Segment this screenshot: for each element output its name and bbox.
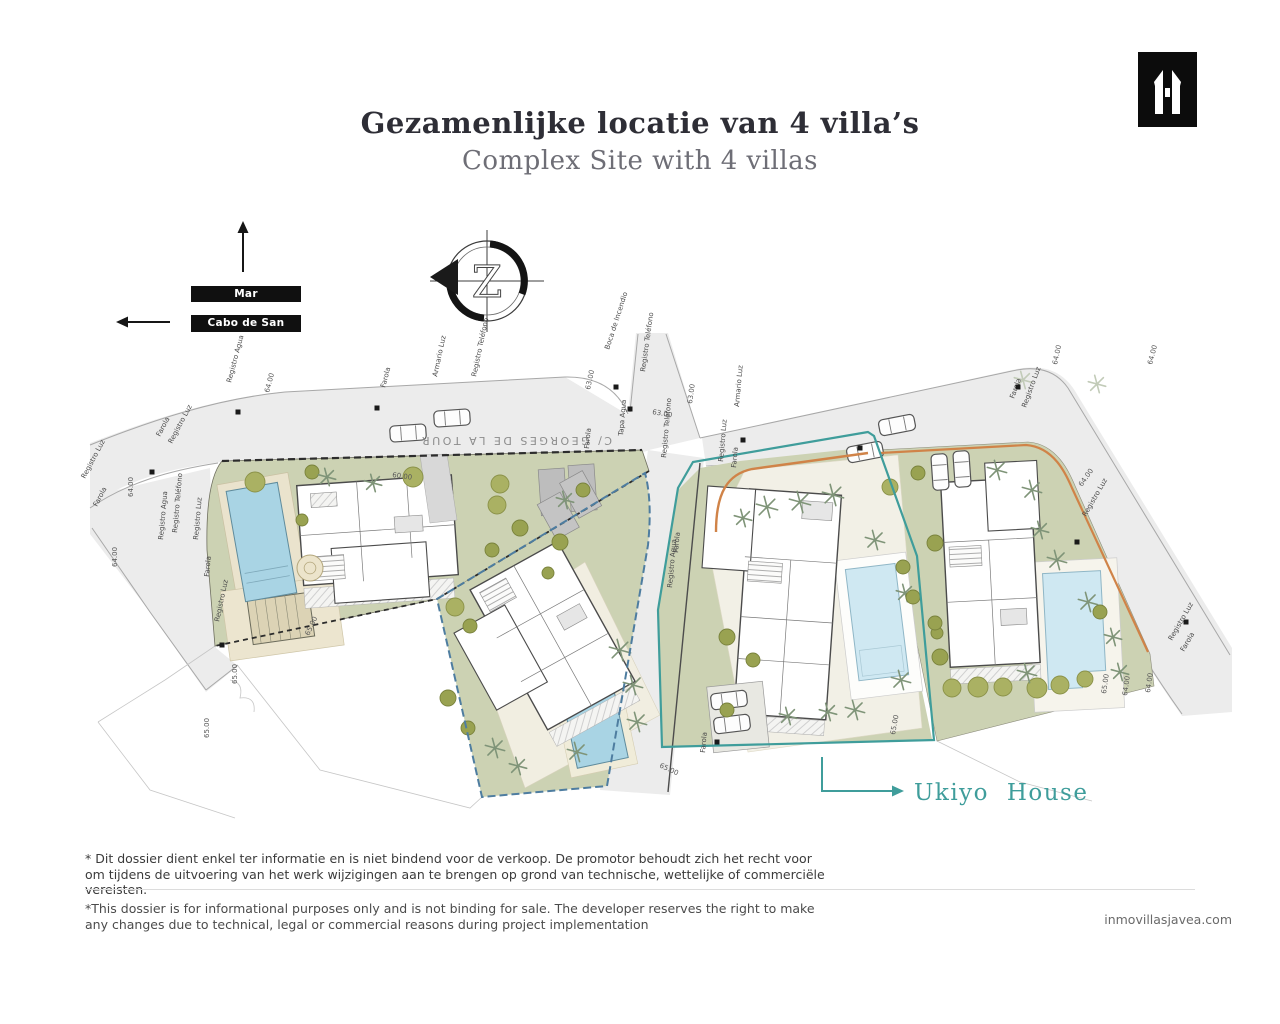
olive-tree-icon <box>1077 671 1093 687</box>
olive-tree-icon <box>305 465 319 479</box>
utility-marker-icon <box>1016 385 1021 390</box>
plan-annotation: 64.00 <box>127 477 135 497</box>
utility-marker-icon <box>858 446 863 451</box>
plan-annotation: 64.00 <box>1121 675 1132 696</box>
plan-annotation: 64.00 <box>111 547 119 567</box>
palm-tree-icon <box>1088 375 1105 392</box>
olive-tree-icon <box>1051 676 1069 694</box>
fountain-icon <box>297 555 323 581</box>
olive-tree-icon <box>485 543 499 557</box>
olive-tree-icon <box>542 567 554 579</box>
olive-tree-icon <box>491 475 509 493</box>
utility-marker-icon <box>150 470 155 475</box>
plan-annotation: Registro Teléfono <box>470 317 490 377</box>
olive-tree-icon <box>932 649 948 665</box>
plan-annotation: Boca de Incendio <box>603 291 629 351</box>
car <box>953 450 971 487</box>
disclaimer-english: *This dossier is for informational purpo… <box>85 901 825 932</box>
ukiyo-callout: Ukiyo House <box>822 757 1088 806</box>
utility-marker-icon <box>614 385 619 390</box>
plan-annotation: 65.00 <box>231 664 239 684</box>
utility-marker-icon <box>1184 620 1189 625</box>
utility-marker-icon <box>628 407 633 412</box>
plan-annotation: Farola <box>379 366 392 388</box>
north-sea-arrow <box>116 221 249 328</box>
olive-tree-icon <box>576 483 590 497</box>
compass-icon: Z <box>430 230 544 332</box>
olive-tree-icon <box>296 514 308 526</box>
olive-tree-icon <box>488 496 506 514</box>
plan-annotation: Farola <box>699 732 709 754</box>
olive-tree-icon <box>446 598 464 616</box>
compass-letter: Z <box>472 257 503 308</box>
utility-marker-icon <box>236 410 241 415</box>
olive-tree-icon <box>463 619 477 633</box>
olive-tree-icon <box>968 677 988 697</box>
olive-tree-icon <box>1093 605 1107 619</box>
olive-tree-icon <box>720 703 734 717</box>
website-link[interactable]: inmovillasjavea.com <box>1104 912 1232 927</box>
olive-tree-icon <box>943 679 961 697</box>
olive-tree-icon <box>512 520 528 536</box>
olive-tree-icon <box>552 534 568 550</box>
utility-marker-icon <box>1075 540 1080 545</box>
plan-annotation: 64.00 <box>1051 344 1063 365</box>
olive-tree-icon <box>746 653 760 667</box>
plan-annotation: Armario Luz <box>431 334 448 377</box>
ukiyo-house-label: Ukiyo House <box>914 780 1088 806</box>
plan-annotation: 64.00 <box>1146 344 1159 365</box>
utility-marker-icon <box>741 438 746 443</box>
car <box>433 409 470 427</box>
olive-tree-icon <box>927 535 943 551</box>
utility-marker-icon <box>715 740 720 745</box>
footer-divider <box>85 889 1195 890</box>
utility-marker-icon <box>375 406 380 411</box>
olive-tree-icon <box>906 590 920 604</box>
plan-annotation: 64.00 <box>263 372 276 393</box>
olive-tree-icon <box>928 616 942 630</box>
plan-annotation: 63.00 <box>686 383 697 404</box>
plan-annotation: 63.00 <box>584 369 596 390</box>
olive-tree-icon <box>896 560 910 574</box>
plan-annotation: Registro Agua <box>225 334 245 383</box>
olive-tree-icon <box>245 472 265 492</box>
villa-4 <box>940 460 1048 684</box>
car <box>931 453 949 490</box>
olive-tree-icon <box>994 678 1012 696</box>
plan-annotation: Armario Luz <box>733 364 745 407</box>
plan-annotation: 65.00 <box>203 718 211 738</box>
olive-tree-icon <box>911 466 925 480</box>
olive-tree-icon <box>440 690 456 706</box>
disclaimer-dutch: * Dit dossier dient enkel ter informatie… <box>85 851 825 898</box>
olive-tree-icon <box>719 629 735 645</box>
brochure-page: Gezamenlijke locatie van 4 villa’s Compl… <box>0 0 1280 1024</box>
olive-tree-icon <box>1027 678 1047 698</box>
plan-annotation: 64.00 <box>1144 672 1155 693</box>
utility-marker-icon <box>220 643 225 648</box>
